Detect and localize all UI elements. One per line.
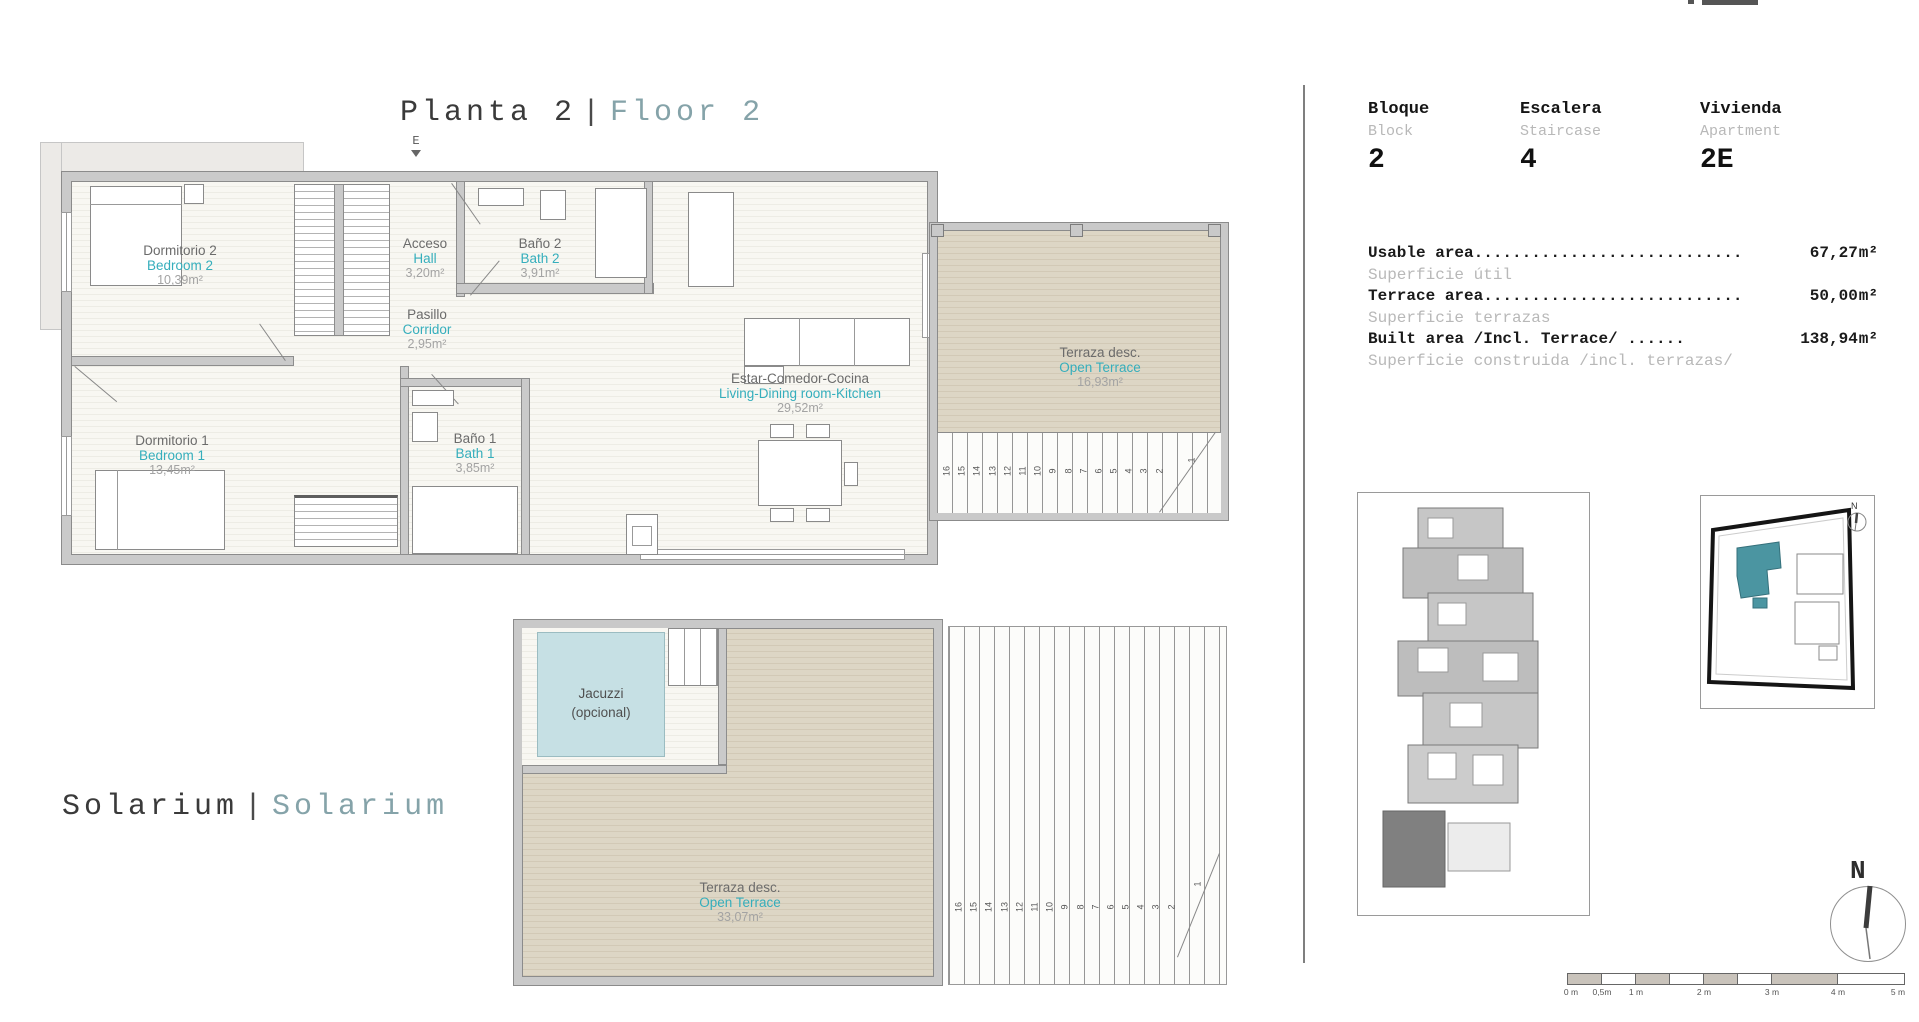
wall [456,283,654,294]
built-area-es-text: Superficie construida /incl. terrazas/ [1368,352,1733,370]
floor-title: Planta 2|Floor 2 [400,96,764,130]
closet-symbol [668,628,718,686]
jacuzzi-label-line1: Jacuzzi [516,684,686,703]
room-label-solarium-terrace: Terraza desc. Open Terrace 33,07m² [650,880,830,925]
site-plan-drawing: N [1701,496,1874,708]
room-name-en: Bedroom 1 [87,448,257,463]
bed-pillow-line [90,204,182,205]
chair-symbol [806,424,830,438]
stair-number: 2 [1131,463,1187,478]
block-value: 2 [1368,145,1429,176]
room-name-en: Bedroom 2 [95,258,265,273]
apartment-label-es: Vivienda [1700,100,1782,119]
apartment-value: 2E [1700,145,1782,176]
usable-area-value: 67,27 [1810,244,1858,262]
room-label-corridor: Pasillo Corridor 2,95m² [342,307,512,352]
solarium-title-es: Solarium [62,790,238,824]
solarium-title-separator: | [238,790,272,824]
panel-divider [1303,85,1305,963]
room-label-terrace: Terraza desc. Open Terrace 16,93m² [1010,345,1190,390]
room-name-es: Dormitorio 2 [95,243,265,258]
room-label-bedroom1: Dormitorio 1 Bedroom 1 13,45m² [87,433,257,478]
stair-numbers: 1615141312111098765432 [939,443,1167,499]
building-plan-drawing [1358,493,1589,915]
room-name-en: Bath 1 [390,446,560,461]
room-area: 2,95m² [342,337,512,352]
stair-number: 2 [1143,899,1199,914]
room-name-en: Bath 2 [455,251,625,266]
room-area: 29,52m² [700,401,900,416]
building-plan-thumbnail [1357,492,1590,916]
site-plan-north-letter: N [1851,501,1858,511]
shower-symbol [412,486,518,554]
built-area-label-es: Superficie construida /incl. terrazas/ [1368,352,1878,374]
floor-title-separator: | [576,96,610,130]
scale-bar-segments [1567,973,1905,985]
solarium-title: Solarium|Solarium [62,790,448,824]
wall [400,378,530,387]
usable-area-row: Usable area............................ … [1368,244,1878,266]
room-label-bedroom2: Dormitorio 2 Bedroom 2 10,39m² [95,243,265,288]
block-label-es: Bloque [1368,100,1429,119]
wall [522,765,727,774]
room-name-es: Baño 2 [455,236,625,251]
stair-numbers: 1615141312111098765432 [951,879,1179,935]
window-symbol [61,436,72,516]
unit-info-apartment: Vivienda Apartment 2E [1700,100,1782,176]
door-swing [74,366,117,402]
usable-area-es-text: Superficie útil [1368,266,1512,284]
usable-area-label: Usable area............................ [1368,244,1742,262]
scale-segment [1636,974,1670,984]
entrance-label: E [404,134,428,148]
terrace-area-row: Terrace area........................... … [1368,287,1878,309]
floor-plan [62,172,937,564]
room-name-es: Estar-Comedor-Cocina [700,371,900,386]
scale-label: 4 m [1831,987,1845,997]
compass-needle [1824,856,1912,980]
site-plan-thumbnail: N [1700,495,1875,709]
built-area-unit: m² [1859,330,1878,348]
sink-symbol [412,390,454,406]
terrace-area-value: 50,00 [1810,287,1858,305]
compass-icon: N [1824,856,1912,980]
stair-number-one: 1 [1193,881,1203,886]
staircase-value: 4 [1520,145,1602,176]
terrace-area-label-es: Superficie terrazas [1368,309,1878,331]
jacuzzi-label: Jacuzzi (opcional) [516,684,686,722]
chair-symbol [770,424,794,438]
bed-symbol [95,470,225,550]
scale-segment [1738,974,1772,984]
terrace-post [1208,224,1221,237]
solarium-plan [514,620,942,985]
scale-segment [1772,974,1838,984]
areas-block: Usable area............................ … [1368,244,1878,373]
scale-segment [1704,974,1738,984]
room-name-es: Terraza desc. [650,880,830,895]
radiator-symbol [294,495,398,547]
wall [718,628,727,765]
sink-symbol [632,526,652,546]
scale-segment [1670,974,1704,984]
dining-table-symbol [758,440,842,506]
room-name-es: Pasillo [342,307,512,322]
room-label-living: Estar-Comedor-Cocina Living-Dining room-… [700,371,900,416]
sofa-line [799,318,800,366]
toilet-symbol [540,190,566,220]
usable-area-label-es: Superficie útil [1368,266,1878,288]
built-area-value: 138,94 [1800,330,1858,348]
wall [71,356,294,366]
block-label-en: Block [1368,123,1429,140]
stair-number-one: 1 [1187,457,1197,462]
window-symbol [640,549,905,560]
chair-symbol [806,508,830,522]
terrace-stairs: 1615141312111098765432 1 [937,432,1221,513]
logo-fragment [1702,0,1758,5]
scale-segment [1568,974,1602,984]
chair-symbol [844,462,858,486]
sink-symbol [478,188,524,206]
room-name-en: Open Terrace [1010,360,1190,375]
logo-fragment [1688,0,1694,4]
room-name-es: Dormitorio 1 [87,433,257,448]
room-area: 10,39m² [95,273,265,288]
kitchen-column-symbol [688,192,734,287]
room-name-es: Terraza desc. [1010,345,1190,360]
room-area: 3,85m² [390,461,560,476]
terrace-post [931,224,944,237]
terrace-area-es-text: Superficie terrazas [1368,309,1550,327]
scale-segment [1602,974,1636,984]
room-name-en: Corridor [342,322,512,337]
room-label-bath1: Baño 1 Bath 1 3,85m² [390,431,560,476]
scale-label: 5 m [1891,987,1905,997]
terrace-area-label: Terrace area........................... [1368,287,1742,305]
usable-area-unit: m² [1859,244,1878,262]
room-area: 3,91m² [455,266,625,281]
scale-label: 3 m [1765,987,1779,997]
apartment-label-en: Apartment [1700,123,1782,140]
exterior-ledge [40,142,62,330]
built-area-label: Built area /Incl. Terrace/ ...... [1368,330,1685,348]
staircase-label-en: Staircase [1520,123,1602,140]
entrance-arrow-icon [411,150,421,157]
entrance-marker: E [404,134,428,157]
solarium-title-en: Solarium [272,790,448,824]
built-area-row: Built area /Incl. Terrace/ ...... 138,94… [1368,330,1878,352]
scale-label: 1 m [1629,987,1643,997]
bed-pillow-line [117,470,118,550]
room-area: 16,93m² [1010,375,1190,390]
room-name-en: Open Terrace [650,895,830,910]
jacuzzi-label-line2: (opcional) [516,703,686,722]
sofa-symbol [744,318,910,366]
scale-segment [1838,974,1904,984]
staircase-label-es: Escalera [1520,100,1602,119]
floor-title-es: Planta 2 [400,96,576,130]
room-name-es: Baño 1 [390,431,560,446]
scale-label: 0 m [1564,987,1578,997]
solarium-stairs: 1615141312111098765432 1 [948,626,1227,985]
scale-label: 0,5m [1593,987,1612,997]
scale-bar: 0 m 0,5m 1 m 2 m 3 m 4 m 5 m [1567,973,1905,999]
room-area: 33,07m² [650,910,830,925]
unit-info-block: Bloque Block 2 [1368,100,1429,176]
sofa-line [854,318,855,366]
floor-title-en: Floor 2 [610,96,764,130]
window-symbol [61,212,72,292]
exterior-ledge [40,142,304,176]
chair-symbol [770,508,794,522]
scale-label: 2 m [1697,987,1711,997]
room-name-en: Living-Dining room-Kitchen [700,386,900,401]
terrace-area-unit: m² [1859,287,1878,305]
unit-info-staircase: Escalera Staircase 4 [1520,100,1602,176]
nightstand-symbol [184,184,204,204]
terrace-post [1070,224,1083,237]
room-area: 13,45m² [87,463,257,478]
room-label-bath2: Baño 2 Bath 2 3,91m² [455,236,625,281]
